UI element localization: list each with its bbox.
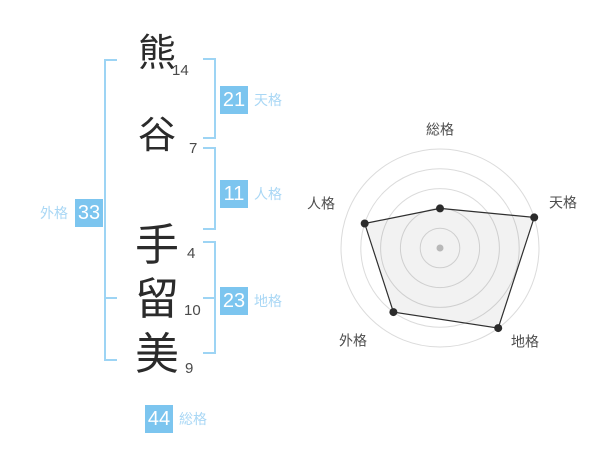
gaikaku-bracket-tick-mid [104,297,117,299]
given-char-3: 美 [135,333,179,377]
tenkaku-bracket-tick-bottom [203,137,216,139]
gaikaku-bracket [104,59,106,361]
radar-axis-label: 天格 [549,195,577,211]
radar-data-point [361,220,369,228]
name-analysis-panel: 熊 谷 手 留 美 14 7 4 10 9 21 天格 11 人格 23 地格 … [0,0,600,470]
stroke-count: 4 [187,246,195,261]
radar-chart: 総格天格地格外格人格 [305,95,595,375]
gaikaku-bracket-tick-bottom [104,359,117,361]
jinkaku-value-box: 11 [220,180,248,208]
chikaku-value-box: 23 [220,287,248,315]
radar-axis-label: 人格 [307,196,335,212]
tenkaku-value-box: 21 [220,86,248,114]
surname-char-1: 熊 [138,35,176,73]
chikaku-bracket-tick-mid [203,297,216,299]
stroke-count: 14 [172,63,189,78]
radar-axis-label: 総格 [426,122,454,138]
stroke-count: 7 [189,141,197,156]
radar-axis-label: 地格 [511,334,539,350]
gaikaku-value-box: 33 [75,199,103,227]
radar-data-point [530,213,538,221]
soukaku-label: 総格 [179,412,207,426]
stroke-count: 9 [185,361,193,376]
given-char-1: 手 [135,224,179,268]
jinkaku-bracket-tick-top [203,147,216,149]
surname-char-2: 谷 [138,117,176,155]
tenkaku-bracket-tick-top [203,58,216,60]
jinkaku-bracket [214,147,216,230]
tenkaku-bracket [214,58,216,139]
soukaku-value-box: 44 [145,405,173,433]
chikaku-bracket-tick-top [203,241,216,243]
jinkaku-label: 人格 [254,187,282,201]
radar-data-point [389,308,397,316]
radar-data-point [494,324,502,332]
gaikaku-bracket-tick-top [104,59,117,61]
radar-axis-label: 外格 [339,333,367,349]
tenkaku-label: 天格 [254,93,282,107]
stroke-count: 10 [184,303,201,318]
chikaku-bracket-tick-bottom [203,352,216,354]
chikaku-label: 地格 [254,294,282,308]
given-char-2: 留 [135,278,179,322]
radar-data-point [436,204,444,212]
gaikaku-label: 外格 [40,206,68,220]
jinkaku-bracket-tick-bottom [203,228,216,230]
